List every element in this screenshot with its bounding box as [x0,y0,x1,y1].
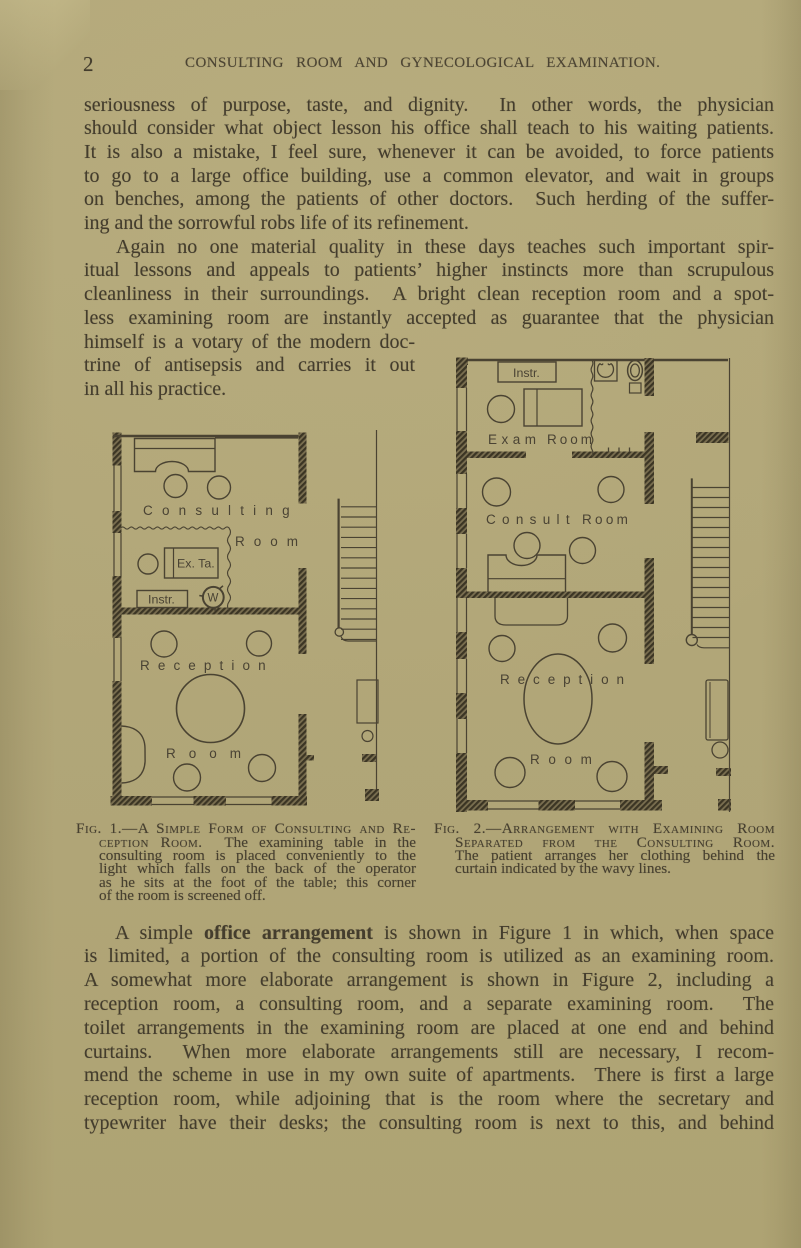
svg-text:Consulting: Consulting [143,503,299,518]
svg-text:Exam: Exam [488,432,541,447]
svg-text:Room: Room [530,752,600,767]
svg-text:Instr.: Instr. [148,593,175,607]
svg-text:Room: Room [547,432,595,447]
svg-text:Reception: Reception [140,658,274,673]
svg-text:Room: Room [166,746,254,761]
svg-text:Instr.: Instr. [513,366,540,380]
svg-text:Room: Room [235,534,307,549]
svg-text:W: W [208,593,219,605]
svg-text:Room: Room [582,512,631,527]
svg-text:Consult: Consult [486,512,576,527]
svg-text:Reception: Reception [500,672,632,687]
svg-text:Ex. Ta.: Ex. Ta. [177,557,215,571]
